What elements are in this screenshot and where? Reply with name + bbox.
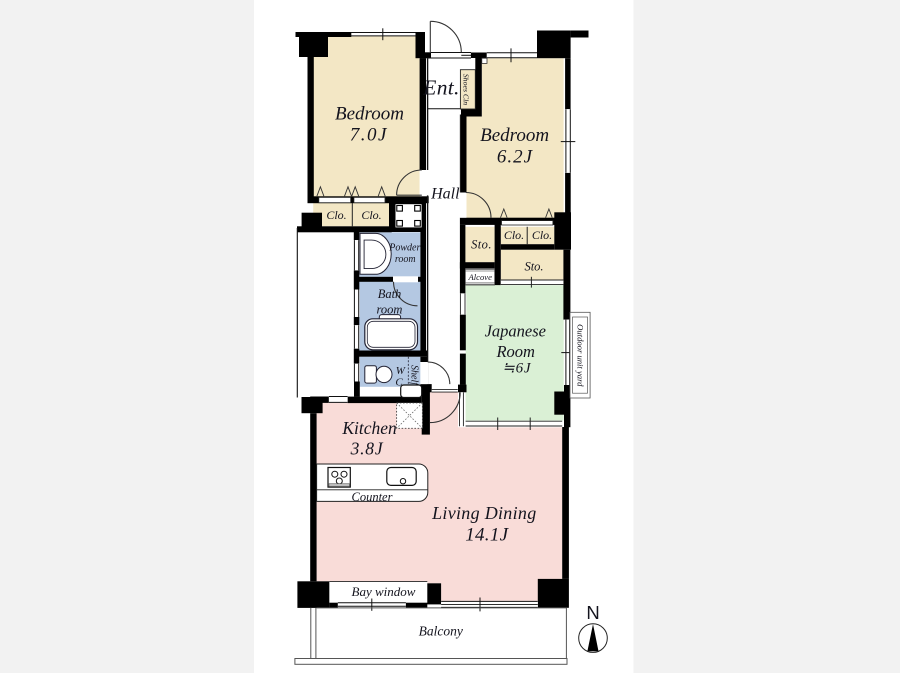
svg-text:Kitchen: Kitchen [341,418,397,438]
svg-text:Ent.: Ent. [422,76,459,100]
svg-text:6.2J: 6.2J [497,147,534,168]
svg-text:Hall: Hall [430,186,460,203]
svg-text:Alcove: Alcove [468,272,493,282]
svg-text:Counter: Counter [352,490,393,504]
svg-text:Clo.: Clo. [361,208,381,222]
svg-text:W: W [396,365,406,377]
svg-text:14.1J: 14.1J [465,525,509,546]
svg-text:Shoes Cln: Shoes Cln [461,74,470,106]
svg-text:≒6J: ≒6J [502,360,532,376]
svg-text:Bedroom: Bedroom [335,104,404,125]
svg-text:Sto.: Sto. [471,238,492,252]
svg-text:C: C [395,376,403,388]
svg-text:Clo.: Clo. [532,228,552,242]
svg-text:Outdoor unit yard: Outdoor unit yard [576,324,586,387]
svg-text:Living Dining: Living Dining [431,503,536,523]
svg-text:Room: Room [495,342,535,361]
svg-text:N: N [586,602,599,623]
svg-text:3.8J: 3.8J [350,439,384,459]
svg-text:Clo.: Clo. [326,208,346,222]
svg-text:Japanese: Japanese [485,322,546,341]
svg-text:Bay window: Bay window [352,584,416,599]
svg-text:Shelf: Shelf [409,365,420,386]
svg-text:Sto.: Sto. [524,260,543,274]
svg-text:room: room [395,254,416,265]
svg-text:room: room [377,303,403,317]
svg-text:Bedroom: Bedroom [480,125,549,146]
svg-text:Bath: Bath [378,287,402,301]
svg-text:Powder: Powder [388,242,420,253]
svg-text:Clo.: Clo. [504,228,524,242]
svg-text:7.0J: 7.0J [350,125,388,146]
svg-text:Balcony: Balcony [419,623,463,638]
